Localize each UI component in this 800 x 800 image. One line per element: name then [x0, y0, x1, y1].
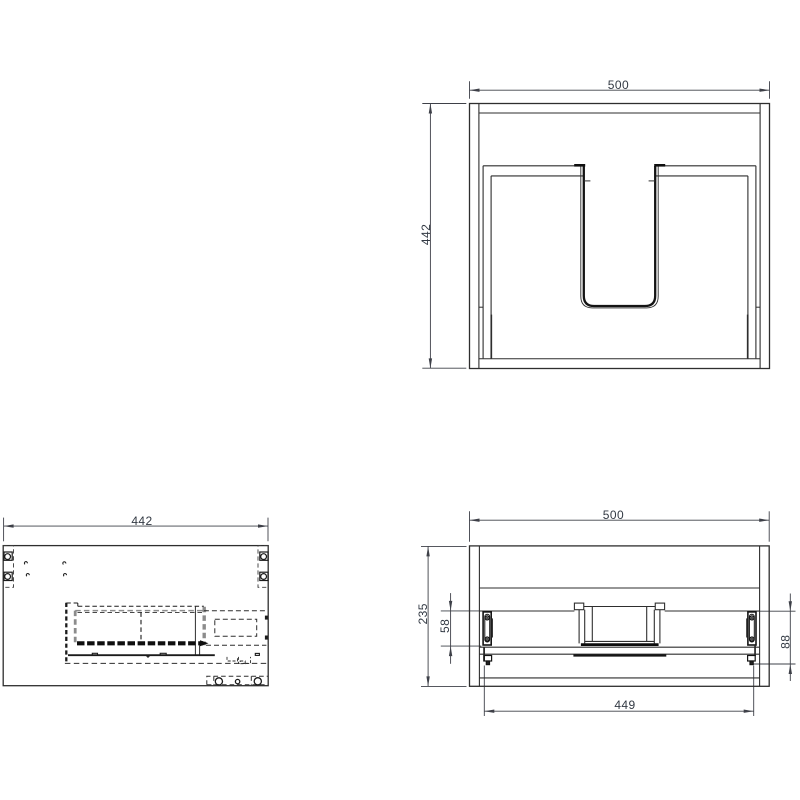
- svg-text:88: 88: [778, 635, 792, 649]
- svg-text:449: 449: [614, 698, 635, 712]
- svg-text:58: 58: [438, 619, 452, 633]
- svg-text:500: 500: [603, 508, 624, 522]
- svg-text:500: 500: [608, 78, 629, 92]
- svg-text:442: 442: [419, 224, 433, 245]
- svg-text:442: 442: [131, 514, 152, 528]
- svg-text:235: 235: [416, 603, 430, 624]
